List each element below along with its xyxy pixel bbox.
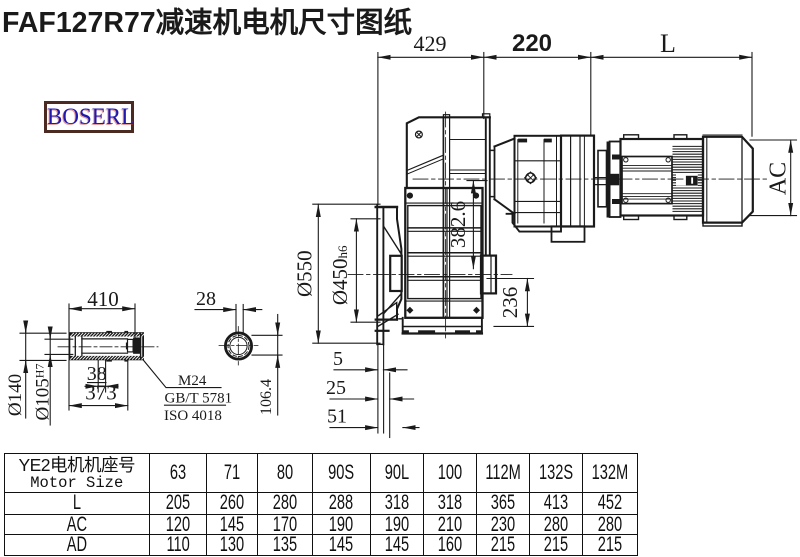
svg-text:220: 220 — [512, 30, 552, 57]
svg-text:429: 429 — [414, 31, 447, 56]
svg-text:25: 25 — [326, 377, 346, 399]
svg-text:Ø550: Ø550 — [293, 250, 317, 297]
svg-text:28: 28 — [196, 288, 216, 310]
svg-text:M24: M24 — [178, 373, 207, 389]
svg-text:L: L — [660, 29, 676, 58]
svg-text:Ø450h6: Ø450h6 — [328, 245, 352, 305]
svg-text:236: 236 — [498, 287, 522, 319]
svg-text:5: 5 — [333, 348, 343, 370]
svg-text:AC: AC — [765, 162, 791, 195]
svg-text:410: 410 — [87, 287, 119, 311]
svg-text:373: 373 — [85, 381, 117, 405]
svg-text:Ø140: Ø140 — [5, 374, 26, 416]
svg-text:GB/T 5781: GB/T 5781 — [165, 391, 233, 407]
svg-text:51: 51 — [327, 406, 347, 428]
svg-text:ISO 4018: ISO 4018 — [164, 408, 222, 424]
svg-text:106.4: 106.4 — [258, 379, 275, 415]
